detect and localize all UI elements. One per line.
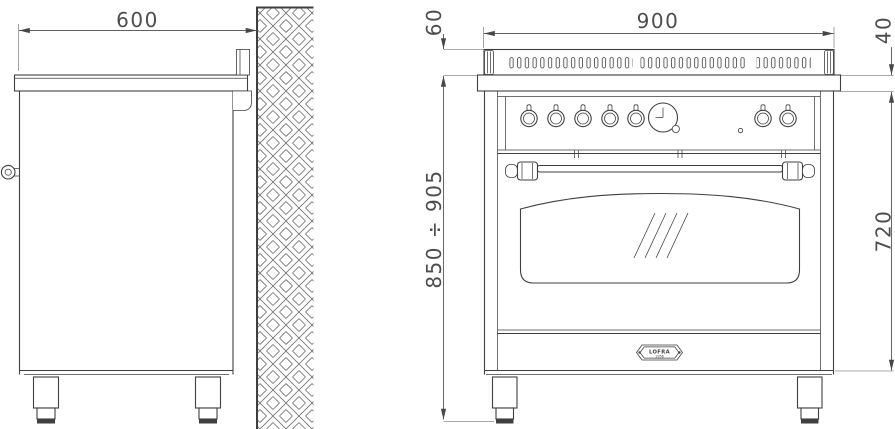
dim-side-depth-label: 600 (116, 8, 159, 32)
front-worktop (478, 75, 841, 91)
door-hinge-ticks (575, 151, 786, 159)
burner-knob-5 (628, 105, 644, 127)
handle-end-cap-right (803, 165, 815, 178)
door-handle (506, 162, 815, 180)
vent-slots-right (757, 57, 812, 69)
dim-worktop-thickness-label: 40 (872, 16, 895, 44)
ignition-button (738, 128, 742, 132)
dimension-drawing-page: LOFRA 1956 600 900 (0, 0, 895, 429)
brand-badge: LOFRA 1956 (637, 345, 683, 360)
clock-winder (672, 125, 679, 132)
side-worktop (15, 75, 248, 91)
dim-front-width-label: 900 (637, 9, 680, 33)
side-rear-bracket (233, 91, 252, 111)
rail-end-cap-left (485, 51, 494, 75)
dim-overall-height: 850 ÷ 905 (422, 76, 494, 422)
rail-end-cap-right (825, 51, 834, 75)
vent-slots-middle (641, 57, 747, 69)
front-body-frame (485, 91, 834, 375)
badge-screw-left (638, 351, 640, 353)
front-leg-right (798, 377, 823, 424)
side-backguard (237, 50, 250, 76)
handle-knob-outer (1, 165, 15, 179)
side-view (1, 50, 251, 424)
front-leg-left (493, 377, 518, 424)
side-body (20, 91, 234, 375)
badge-year-text: 1956 (655, 355, 664, 359)
dim-body-height: 720 (835, 92, 895, 371)
dim-front-width: 900 (484, 9, 835, 48)
handle-end-cap-left (506, 165, 518, 178)
oven-door (498, 151, 821, 334)
oven-knob-2 (780, 105, 796, 127)
vent-slots-left (508, 57, 634, 69)
side-rear-leg (196, 377, 221, 424)
dim-side-depth: 600 (19, 8, 257, 71)
side-front-leg (34, 377, 59, 424)
control-panel (498, 97, 821, 154)
badge-screw-right (678, 351, 680, 353)
door-window (521, 194, 800, 284)
burner-knob-3 (575, 105, 591, 127)
side-door-handle (1, 165, 19, 179)
wall-hatch-fill (257, 7, 314, 429)
technical-drawing: LOFRA 1956 600 900 (0, 0, 895, 429)
window-glare-lines (634, 213, 688, 258)
dim-backguard-height: 60 (422, 8, 484, 76)
handle-bar (538, 166, 783, 173)
dim-body-height-label: 720 (872, 210, 895, 253)
wall-section (257, 7, 314, 429)
burner-knob-1 (521, 105, 537, 127)
dim-overall-height-label: 850 ÷ 905 (422, 169, 446, 288)
dim-worktop-thickness: 40 (841, 16, 895, 92)
burner-knob-2 (548, 105, 564, 127)
handle-mount-right (783, 162, 803, 180)
oven-knob-1 (755, 105, 771, 127)
burner-knob-4 (602, 105, 618, 127)
dim-backguard-height-label: 60 (422, 8, 446, 36)
handle-mount-left (518, 162, 538, 180)
front-view: LOFRA 1956 (478, 50, 841, 424)
clock-timer (649, 103, 680, 133)
backguard-rail (484, 50, 834, 76)
